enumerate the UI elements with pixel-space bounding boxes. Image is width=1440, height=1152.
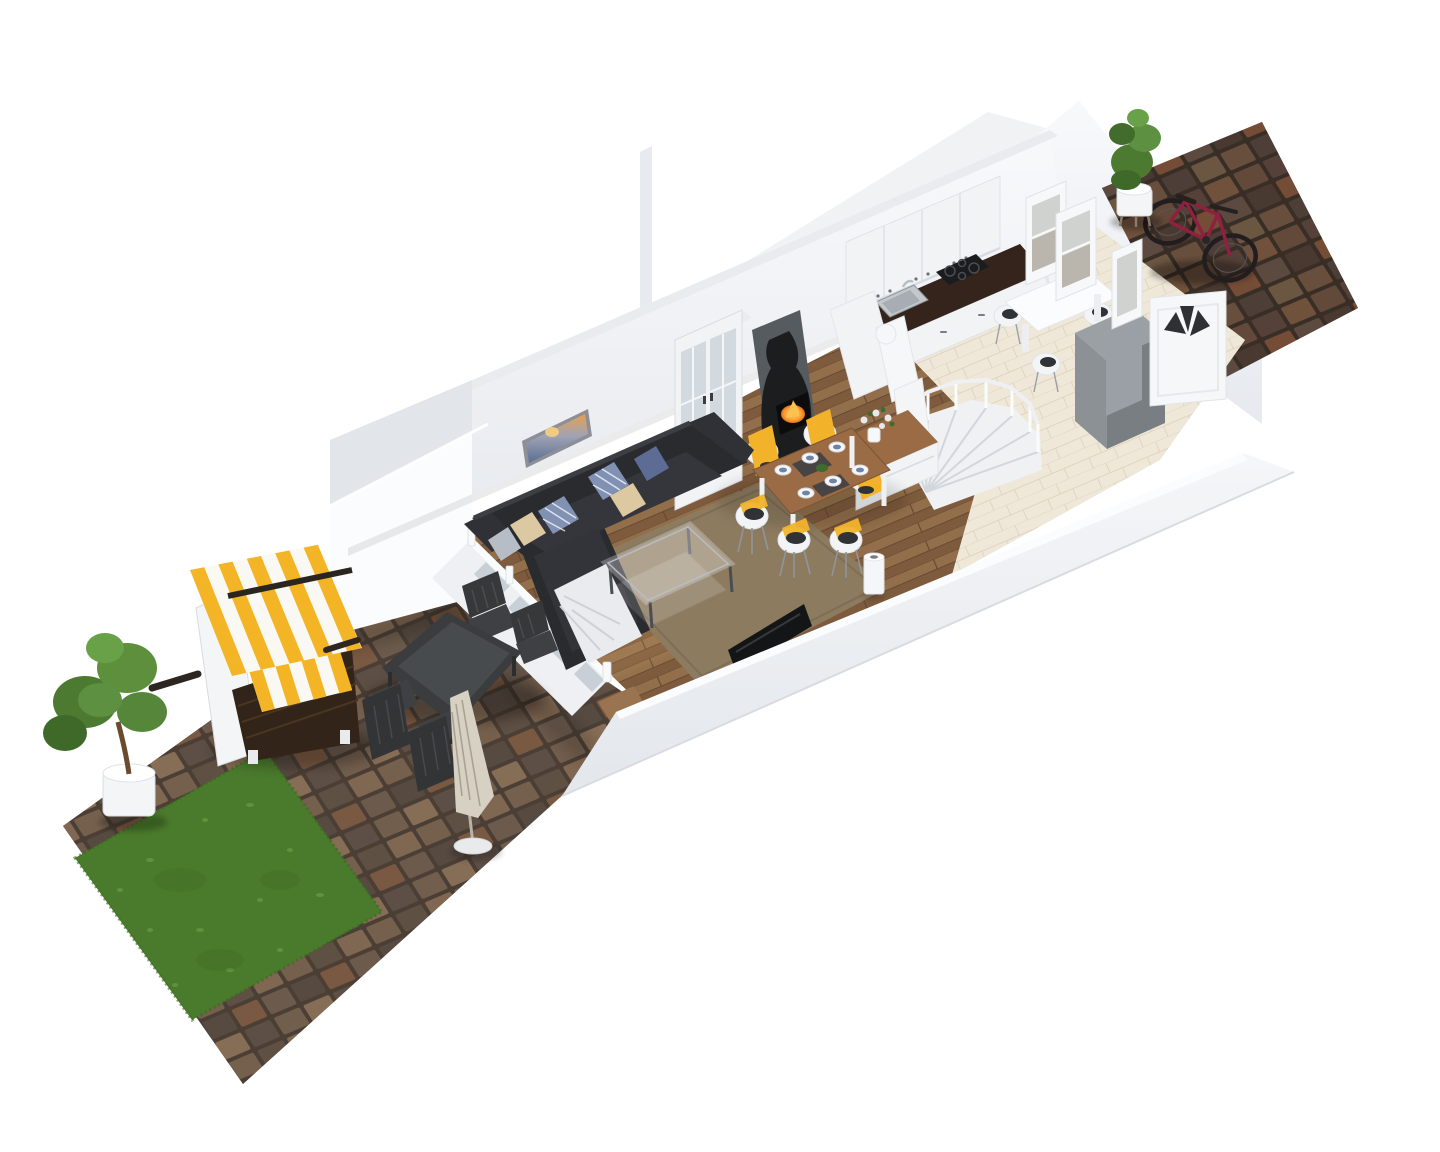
kitchen-table-leg-2 [1094, 294, 1101, 322]
floor-plan-render [0, 0, 1440, 1152]
window-3-glass [1117, 250, 1137, 317]
window-2 [1056, 197, 1096, 301]
dining-centerpiece [816, 464, 828, 472]
parasol-base [454, 838, 492, 854]
lamp-body [864, 556, 884, 594]
bike-crank [1202, 236, 1210, 244]
cabinet-handle-right [710, 393, 713, 401]
window-3 [1112, 239, 1142, 329]
counter-return-cap [876, 324, 896, 344]
strandkorb-leg-1 [248, 750, 258, 764]
cabinet-handle-left [703, 396, 706, 404]
strandkorb-leg-2 [340, 730, 350, 744]
lamp-opening [870, 555, 878, 559]
front-door [1150, 291, 1226, 406]
kitchen-table-leg-1 [1022, 324, 1029, 352]
picture-sun [545, 427, 559, 437]
interior-gray-wall [1106, 312, 1142, 416]
floor-lamp [862, 553, 886, 601]
